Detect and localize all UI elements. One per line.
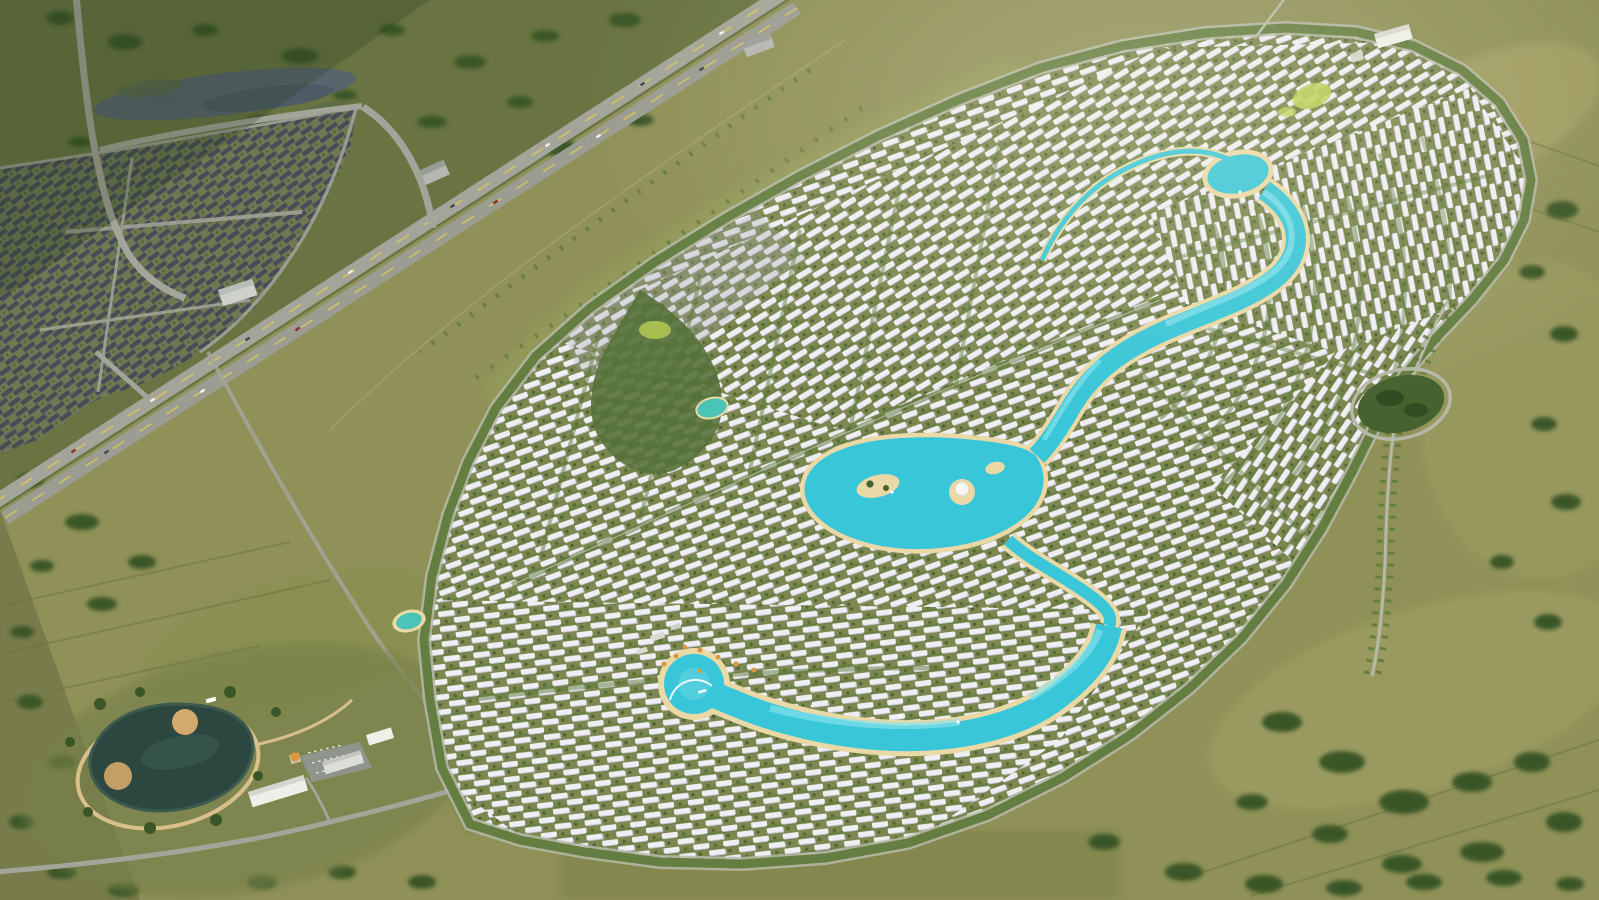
sun-glare — [0, 0, 1599, 900]
aerial-scene — [0, 0, 1599, 900]
aerial-render-canvas: Aerial rendering of a large master-plann… — [0, 0, 1599, 900]
